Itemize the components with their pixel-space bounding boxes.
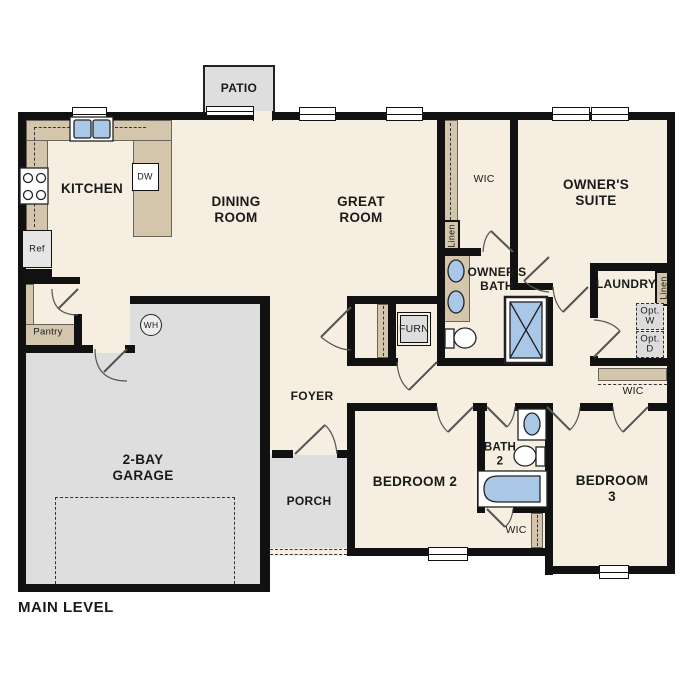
porch-label: PORCH	[287, 494, 332, 508]
slider-gap	[253, 111, 273, 121]
foyer-label: FOYER	[291, 389, 334, 403]
wall	[347, 296, 355, 366]
wall	[347, 403, 437, 411]
wall	[347, 403, 355, 556]
dining-room-label: DINING ROOM	[211, 194, 260, 226]
wall	[580, 403, 613, 411]
wall	[667, 112, 675, 574]
owners-bath-label: OWNER'S BATH	[468, 265, 527, 293]
kitchen-counter-left	[26, 140, 48, 232]
owners-suite-window-2	[591, 107, 629, 121]
opt-washer-label: Opt. W	[640, 307, 659, 328]
garage-door-dash	[55, 497, 235, 584]
wall	[74, 314, 82, 352]
wall	[18, 584, 270, 592]
owners-linen-label: Linen	[447, 224, 458, 248]
porch-step-dash	[270, 549, 347, 550]
bedroom3-label: BEDROOM 3	[575, 473, 650, 505]
dining-window	[299, 107, 336, 121]
wall	[18, 277, 80, 284]
patio-slider-door	[206, 106, 254, 116]
kitchen-counter-top	[26, 120, 172, 141]
laundry-linen-label: Linen	[659, 276, 670, 300]
water-heater-label: WH	[144, 320, 159, 330]
furnace-label: FURN	[399, 323, 429, 335]
bedroom3-wic-rod	[598, 368, 667, 381]
wall	[437, 112, 445, 366]
owners-wic-rod-dash	[450, 123, 451, 220]
patio-label: PATIO	[221, 81, 257, 95]
wall	[437, 248, 481, 256]
bedroom2-window	[428, 547, 468, 561]
hall-wic-rod-dash	[537, 515, 538, 546]
wall	[437, 358, 553, 366]
owners-suite-window-1	[552, 107, 590, 121]
wall	[130, 296, 270, 304]
wall	[347, 358, 398, 366]
kitchen-window	[72, 107, 107, 121]
kitchen-label: KITCHEN	[61, 181, 123, 197]
porch-step-dash	[270, 554, 347, 555]
laundry-label: LAUNDRY	[596, 277, 656, 291]
owners-bath-vanity	[443, 255, 470, 322]
bedroom3-window	[599, 565, 629, 579]
great-room-label: GREAT ROOM	[337, 194, 385, 226]
great-room-window	[386, 107, 423, 121]
bath2-label: BATH 2	[484, 441, 516, 468]
garage-label: 2-BAY GARAGE	[112, 452, 173, 484]
ref-label: Ref	[29, 243, 45, 254]
hall-wic-label: WIC	[505, 524, 526, 536]
owners-suite-label: OWNER'S SUITE	[563, 177, 629, 209]
wall	[260, 296, 270, 592]
wall	[337, 450, 347, 458]
wall	[515, 403, 547, 411]
floor-plan: KITCHEN DINING ROOM GREAT ROOM OWNER'S S…	[0, 0, 687, 687]
main-level-title: MAIN LEVEL	[18, 599, 114, 617]
wall	[590, 263, 675, 271]
upper-cabinet-dash	[115, 127, 146, 128]
wall	[18, 269, 52, 277]
bedroom3-wic-label: WIC	[622, 385, 643, 397]
pantry-label: Pantry	[33, 326, 62, 337]
dishwasher-label: DW	[136, 172, 154, 183]
coat-closet-rod-dash	[383, 306, 384, 356]
upper-cabinet-dash	[34, 127, 35, 227]
wall	[272, 450, 293, 458]
wall	[590, 358, 675, 366]
bedroom2-label: BEDROOM 2	[373, 474, 457, 490]
owners-wic-label: WIC	[473, 173, 494, 185]
wall	[510, 112, 518, 290]
opt-dryer-label: Opt. D	[640, 335, 659, 356]
wall	[545, 297, 553, 366]
wall	[648, 403, 675, 411]
wall	[388, 304, 396, 366]
upper-cabinet-dash	[34, 127, 70, 128]
wall	[473, 403, 487, 411]
wall	[347, 296, 445, 304]
wall	[125, 345, 135, 353]
